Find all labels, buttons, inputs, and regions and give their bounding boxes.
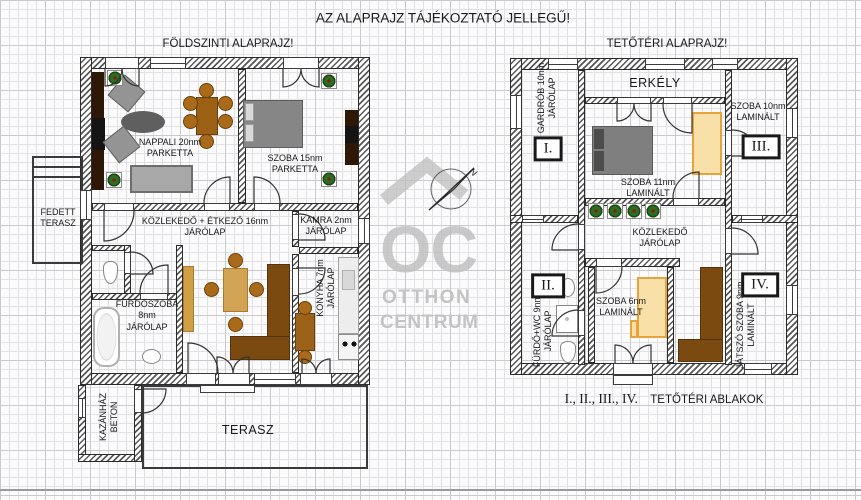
door-arc bbox=[633, 345, 651, 363]
room-label-terasz: TERASZ bbox=[222, 423, 274, 439]
door-arc bbox=[233, 357, 249, 373]
window-marker-iv: IV. bbox=[741, 272, 779, 297]
north-arrow-icon: N bbox=[424, 161, 480, 217]
north-letter: N bbox=[468, 166, 480, 178]
door-arc bbox=[204, 177, 230, 203]
attic-title: TETŐTÉRI ALAPRAJZ! bbox=[607, 37, 728, 51]
room-label-kazanhaz: KAZÁNHÁZ BETON bbox=[98, 393, 121, 441]
door-arc bbox=[663, 104, 692, 133]
door-arc bbox=[140, 265, 168, 293]
floorplan-canvas: AZ ALAPRAJZ TÁJÉKOZTATÓ JELLEGŰ! FÖLDSZI… bbox=[0, 0, 861, 500]
door-arc bbox=[105, 69, 122, 86]
room-label-szoba6: SZOBA 6nm LAMINÁLT bbox=[596, 296, 646, 319]
door-arc bbox=[131, 252, 153, 274]
room-label-szoba11: SZOBA 11nm LAMINÁLT bbox=[621, 177, 675, 200]
room-label-kamra: KAMRA 2nm JÁRÓLAP bbox=[300, 215, 352, 238]
door-arc bbox=[615, 345, 633, 363]
door-arc bbox=[142, 389, 166, 413]
door-arc bbox=[617, 104, 634, 121]
room-label-erkely: ERKÉLY bbox=[629, 76, 680, 92]
room-label-szoba15: SZOBA 15nm PARKETTA bbox=[267, 153, 322, 176]
door-arc bbox=[732, 228, 758, 254]
room-label-konyha: KONYHA 7nm JÁRÓLAP bbox=[315, 259, 338, 317]
caption-numerals: I., II., III., IV. bbox=[565, 391, 638, 406]
door-arc bbox=[283, 69, 301, 87]
room-label-fedett-terasz: FEDETT TERASZ bbox=[40, 207, 76, 230]
ground-floor-title: FÖLDSZINTI ALAPRAJZ! bbox=[163, 37, 294, 51]
door-arc bbox=[122, 69, 139, 86]
door-arc bbox=[634, 104, 651, 121]
door-arc bbox=[673, 172, 699, 198]
room-label-attic-kozlekedo: KÖZLEKEDŐ JÁRÓLAP bbox=[632, 227, 687, 250]
door-arc bbox=[254, 177, 280, 203]
door-arc bbox=[552, 310, 578, 336]
room-label-gardrob: GARDRÓB 10nm JÁRÓLAP bbox=[536, 63, 559, 134]
door-arc bbox=[302, 359, 316, 373]
door-arc bbox=[188, 343, 218, 373]
window-marker-ii: II. bbox=[531, 273, 565, 298]
room-label-szoba10: SZOBA 10nm LAMINÁLT bbox=[730, 101, 785, 124]
window-marker-i: I. bbox=[534, 136, 563, 161]
attic-windows-caption: I., II., III., IV. TETŐTÉRI ABLAKOK bbox=[565, 390, 764, 408]
room-label-furdo-wc: FÜRDŐ+WC 9nm JÁRÓLAP bbox=[532, 295, 555, 367]
door-arc bbox=[596, 267, 622, 293]
door-arc bbox=[316, 359, 330, 373]
door-arc bbox=[217, 357, 233, 373]
room-label-furdoszoba: FÜRDŐSZOBA 8nm JÁRÓLAP bbox=[116, 299, 179, 333]
room-label-kozlekedo: KÖZLEKEDŐ + ÉTKEZŐ 16nm JÁRÓLAP bbox=[125, 216, 285, 239]
door-arc bbox=[301, 69, 319, 87]
caption-text: TETŐTÉRI ABLAKOK bbox=[650, 394, 763, 406]
door-arcs-overlay bbox=[0, 0, 861, 500]
room-label-nappali: NAPPALI 20nm PARKETTA bbox=[139, 137, 201, 160]
door-arc bbox=[552, 224, 578, 250]
window-marker-iii: III. bbox=[742, 134, 781, 159]
page-title: AZ ALAPRAJZ TÁJÉKOZTATÓ JELLEGŰ! bbox=[316, 11, 570, 28]
